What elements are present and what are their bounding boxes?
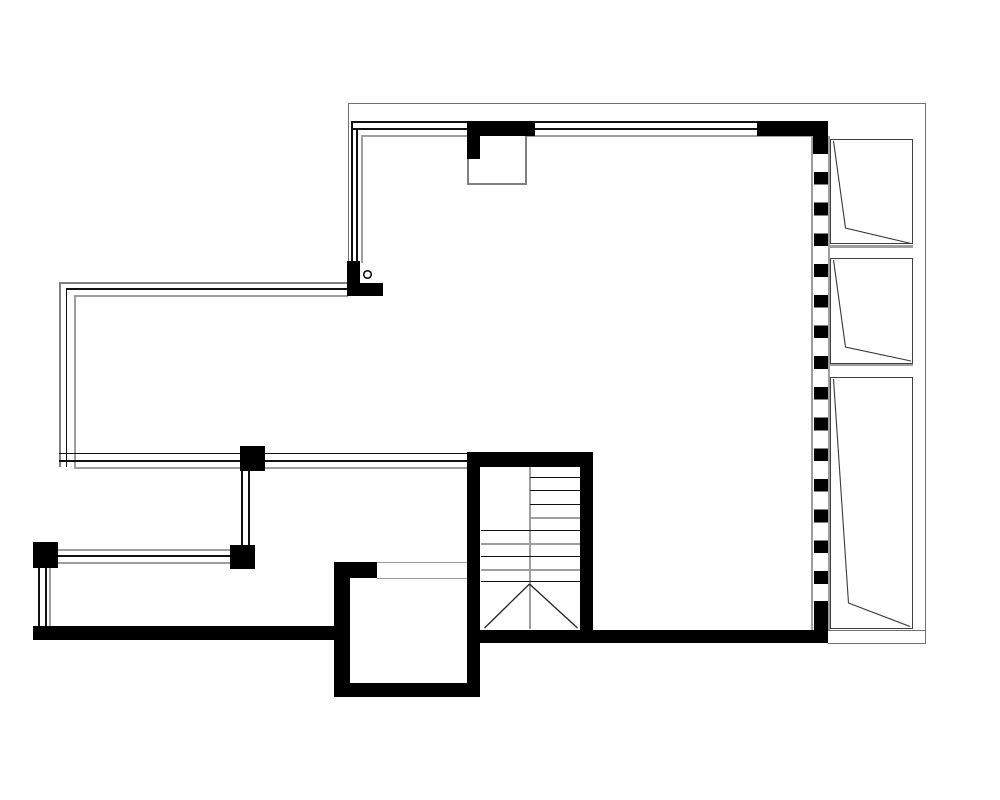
stair-wall-right bbox=[580, 452, 593, 643]
stair-wall-left bbox=[467, 452, 480, 697]
wall-top-center-leg bbox=[467, 136, 480, 159]
stair-direction-arrow bbox=[485, 584, 578, 628]
wall-bottom-east bbox=[467, 630, 828, 644]
stair-wall-top bbox=[467, 452, 593, 467]
linework-overlay bbox=[0, 0, 1000, 800]
wall-top-right bbox=[757, 121, 828, 136]
wardrobe-door-diagonal-1 bbox=[834, 141, 912, 244]
wall-top-right-leg bbox=[813, 136, 828, 154]
column-balcony-c bbox=[33, 542, 58, 568]
wall-top-center-header bbox=[467, 121, 535, 136]
floor-plan-canvas bbox=[0, 0, 1000, 800]
wardrobe-door-diagonal-2 bbox=[834, 260, 912, 361]
circle-marker bbox=[364, 271, 372, 279]
column-balcony-b bbox=[230, 545, 255, 569]
wall-bottom-west bbox=[33, 626, 350, 640]
lower-room-wall-left bbox=[334, 562, 350, 697]
lower-room-wall-bottom bbox=[334, 683, 480, 697]
column-wing-corner-horizontal bbox=[347, 283, 383, 296]
wardrobe-door-diagonal-3 bbox=[834, 379, 911, 627]
lower-room-wall-header bbox=[334, 562, 377, 578]
column-balcony-a bbox=[240, 446, 265, 471]
